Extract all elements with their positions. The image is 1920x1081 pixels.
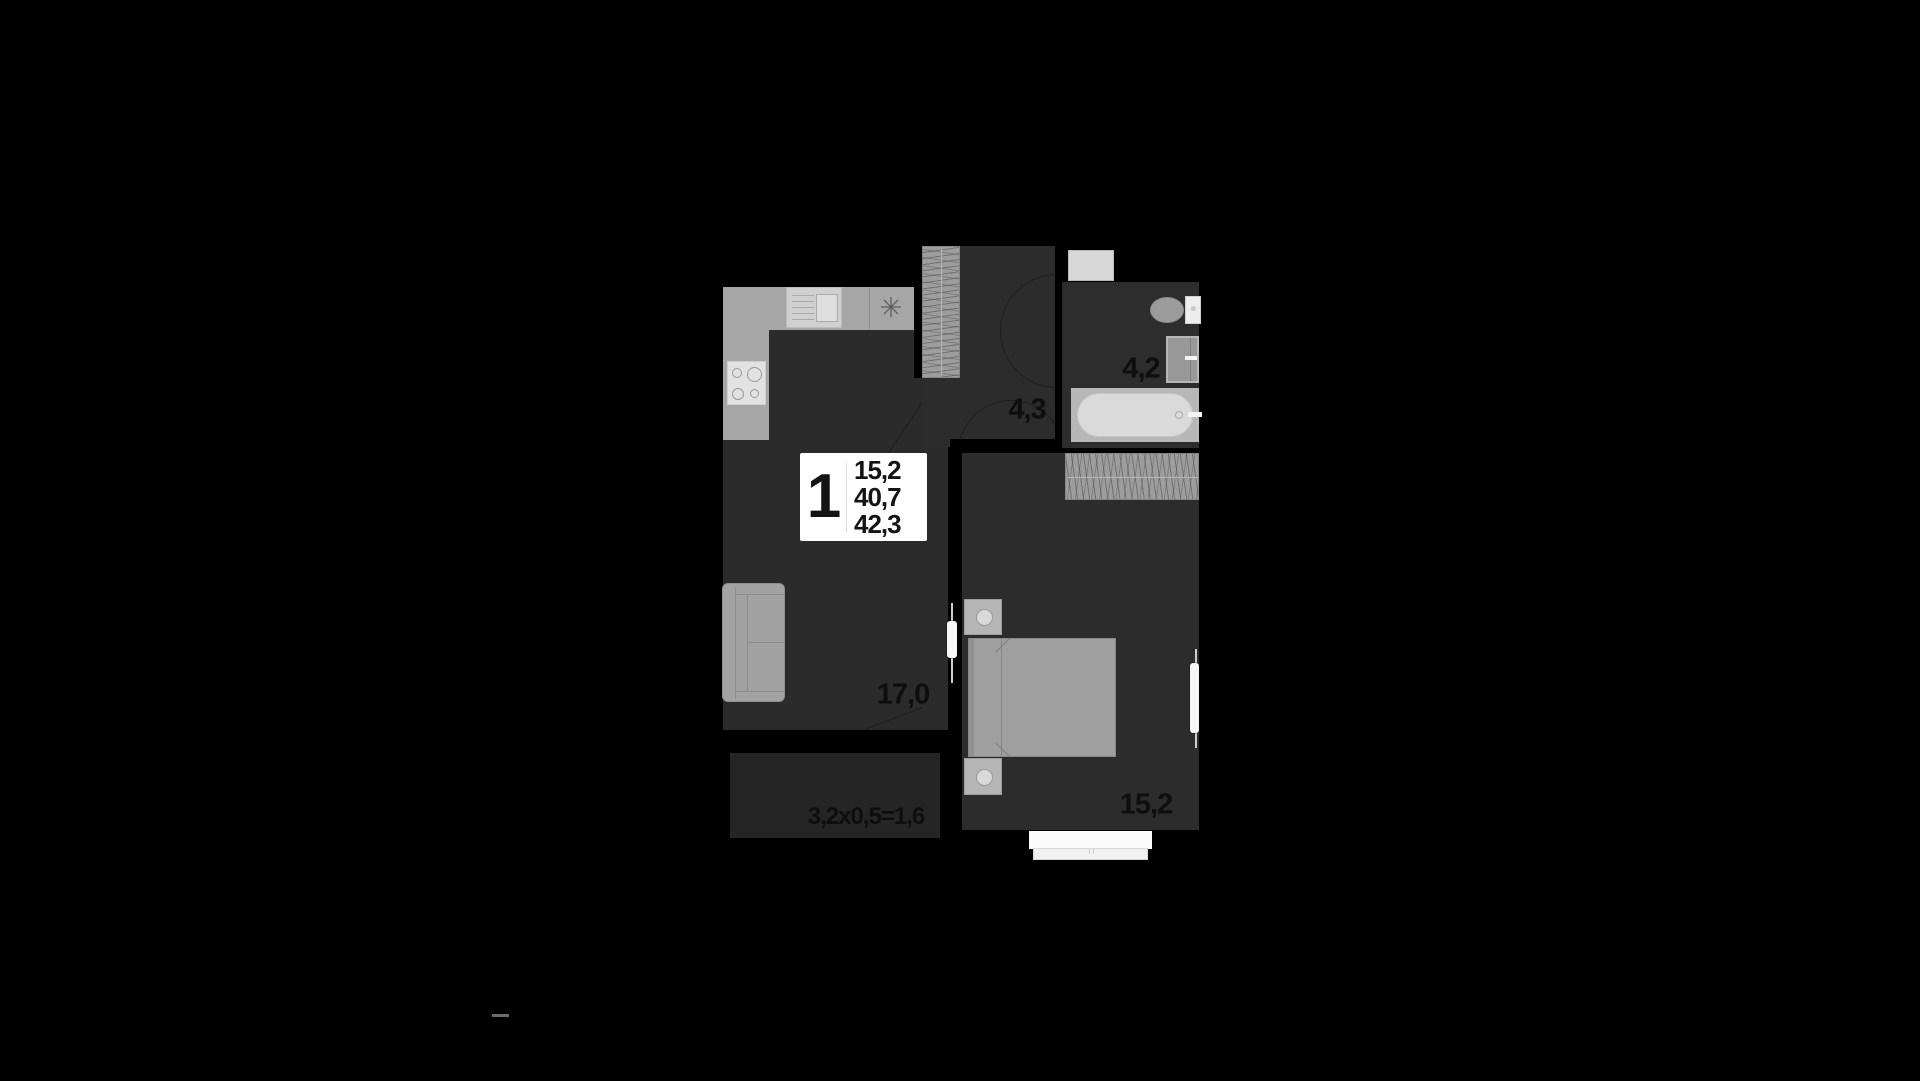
bedroom-window-sill xyxy=(1029,831,1152,849)
toilet-bowl xyxy=(1150,297,1184,323)
unit-areas-list: 15,2 40,7 42,3 xyxy=(847,457,927,538)
stove-cooktop xyxy=(727,361,766,405)
door-swing-arc xyxy=(1000,274,1055,388)
sofa-seat-line xyxy=(747,594,748,692)
burner-icon xyxy=(747,367,762,382)
hallway-wardrobe xyxy=(922,246,960,378)
sink-drawer-line xyxy=(792,301,814,302)
bed-pillow-line xyxy=(1001,639,1002,756)
label-hallway-area: 4,3 xyxy=(1008,394,1045,427)
wardrobe-axis-line xyxy=(1068,477,1198,478)
kitchen-sink-unit xyxy=(786,287,842,328)
sofa-cushion-divider xyxy=(747,642,784,643)
blanket-fold-line xyxy=(995,638,1009,652)
sofa-back-line xyxy=(735,587,736,699)
sink-basin xyxy=(816,294,838,322)
sofa-armrest-line xyxy=(735,691,784,692)
window-mullion-line xyxy=(1093,849,1094,854)
bathtub-faucet xyxy=(1188,412,1202,417)
sofa xyxy=(722,583,785,702)
sink-drawer-line xyxy=(792,307,814,308)
bedroom-window xyxy=(1033,848,1148,860)
label-living-kitchen-area: 17,0 xyxy=(877,679,929,712)
label-bathroom-area: 4,2 xyxy=(1122,353,1159,386)
nightstand xyxy=(964,758,1002,795)
bathtub xyxy=(1071,388,1199,442)
label-balcony-area: 3,2x0,5=1,6 xyxy=(808,803,924,831)
lamp-icon xyxy=(976,609,993,626)
wall-hallway-bottom xyxy=(950,439,1062,453)
bedroom-side-window xyxy=(1190,663,1199,733)
watermark-dash xyxy=(492,1014,509,1017)
blanket-fold-line xyxy=(995,742,1009,756)
bed-headboard xyxy=(969,639,974,756)
wardrobe-axis-line xyxy=(941,249,942,375)
nightstand xyxy=(964,599,1002,635)
window-mullion-line xyxy=(1089,849,1090,854)
washer-handle xyxy=(1185,356,1197,360)
sink-drawer-line xyxy=(792,313,814,314)
unit-living-area: 15,2 xyxy=(854,457,927,484)
burner-icon xyxy=(732,388,744,400)
washing-machine xyxy=(1166,336,1199,383)
bed xyxy=(968,638,1116,757)
sink-drawer-line xyxy=(792,295,814,296)
toilet-button-icon xyxy=(1191,306,1196,311)
wall-kitchen-hallway xyxy=(914,287,922,378)
kitchen-counter-divider xyxy=(869,288,870,329)
label-bedroom-area: 15,2 xyxy=(1120,789,1172,822)
unit-main-area: 40,7 xyxy=(854,484,927,511)
toilet-tank xyxy=(1185,296,1201,324)
bedroom-wardrobe xyxy=(1065,453,1199,500)
sink-drawer-line xyxy=(792,319,814,320)
sofa-armrest-line xyxy=(735,594,784,595)
lamp-icon xyxy=(976,769,993,786)
ventilation-shaft xyxy=(1068,250,1114,281)
unit-info-card: 1 15,2 40,7 42,3 xyxy=(800,453,927,541)
unit-total-area: 42,3 xyxy=(854,511,927,538)
bathtub-drain-icon xyxy=(1175,411,1183,419)
bedroom-door-leaf xyxy=(947,621,957,658)
star-symbol-icon xyxy=(879,295,903,319)
floorplan-canvas: 17,0 4,3 4,2 15,2 3,2x0,5=1,6 1 15,2 40,… xyxy=(0,0,1920,1081)
unit-rooms-count: 1 xyxy=(800,453,846,541)
burner-icon xyxy=(750,389,759,398)
burner-icon xyxy=(732,368,742,378)
